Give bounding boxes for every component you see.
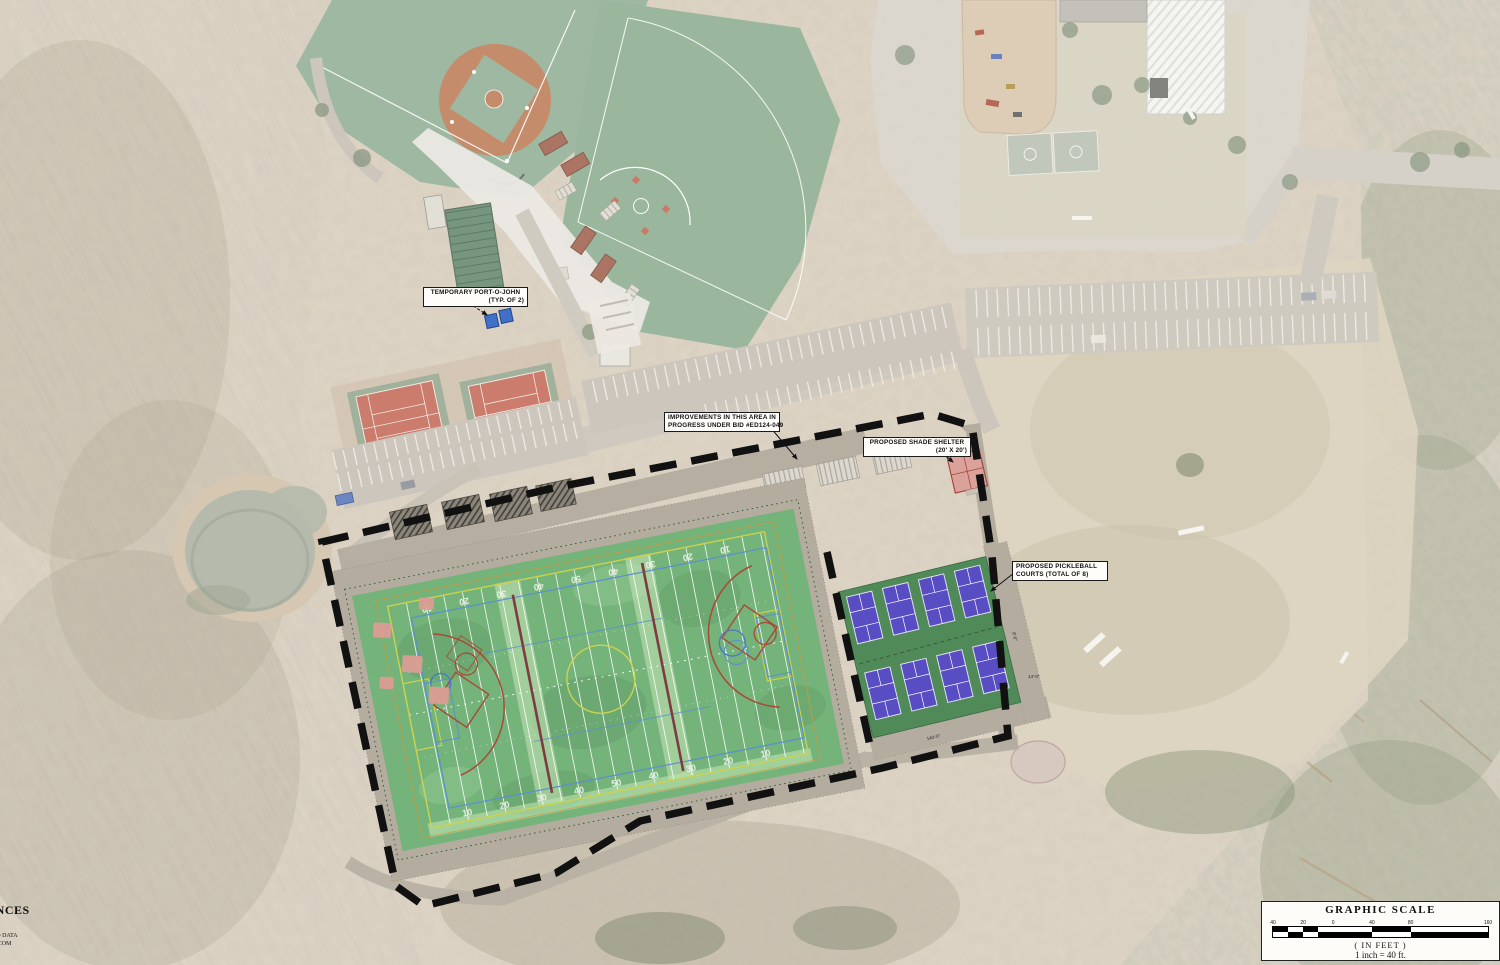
- svg-text:30: 30: [645, 559, 657, 571]
- references-line: BY MAPS.GOOGLE.COM: [0, 940, 30, 948]
- references-heading: REFERENCES: [0, 903, 30, 918]
- callout-line: IMPROVEMENTS IN THIS AREA IN: [668, 414, 776, 421]
- callout-improvements: IMPROVEMENTS IN THIS AREA IN PROGRESS UN…: [664, 412, 780, 432]
- svg-text:10: 10: [461, 807, 473, 819]
- site-plan-canvas: 10 20 30 40 50 40 30 20 10 10 20 30 40 5…: [0, 0, 1500, 965]
- svg-text:20: 20: [722, 755, 734, 767]
- scale-tick: 80: [1408, 920, 1414, 926]
- references-block: REFERENCES REFERENCES: MAP BACKGROUND DA…: [0, 903, 30, 949]
- scale-tick: 20: [1300, 920, 1306, 926]
- svg-text:30: 30: [496, 588, 508, 600]
- aerial-site-plan: 10 20 30 40 50 40 30 20 10 10 20 30 40 5…: [0, 0, 1500, 965]
- scale-ratio: 1 inch = 40 ft.: [1262, 950, 1499, 960]
- svg-text:40: 40: [533, 581, 545, 593]
- callout-pickleball: PROPOSED PICKLEBALL COURTS (TOTAL OF 8): [1012, 561, 1108, 581]
- svg-text:50: 50: [611, 777, 623, 789]
- svg-text:30: 30: [685, 763, 697, 775]
- callout-line: (TYP. OF 2): [427, 297, 524, 305]
- svg-text:40: 40: [573, 785, 585, 797]
- callout-line: PROGRESS UNDER BID #ED124-049: [668, 422, 776, 430]
- svg-text:40: 40: [648, 770, 660, 782]
- svg-text:10: 10: [719, 544, 731, 556]
- references-line: MAP BACKGROUND DATA: [0, 932, 30, 940]
- scale-tick: 40: [1369, 920, 1375, 926]
- callout-line: (20' x 20'): [867, 447, 967, 455]
- graphic-scale-title: GRAPHIC SCALE: [1262, 904, 1499, 916]
- callout-line: PROPOSED PICKLEBALL: [1016, 563, 1097, 570]
- svg-text:40: 40: [607, 566, 619, 578]
- graphic-scale-bar: 40 20 0 40 80 160: [1272, 926, 1489, 938]
- svg-text:10: 10: [760, 748, 772, 760]
- svg-text:50: 50: [570, 573, 582, 585]
- svg-text:20: 20: [682, 551, 694, 563]
- callout-shade-shelter: PROPOSED SHADE SHELTER (20' x 20'): [863, 437, 971, 457]
- callout-line: COURTS (TOTAL OF 8): [1016, 571, 1104, 579]
- callout-line: PROPOSED SHADE SHELTER: [870, 439, 965, 446]
- scale-tick: 160: [1484, 920, 1492, 926]
- references-label: REFERENCES:: [0, 919, 30, 925]
- svg-text:20: 20: [458, 595, 470, 607]
- scale-units: ( IN FEET ): [1262, 940, 1499, 950]
- svg-text:30: 30: [536, 792, 548, 804]
- haze-overlay: [0, 0, 1500, 965]
- scale-tick: 40: [1270, 920, 1276, 926]
- scale-tick: 0: [1332, 920, 1335, 926]
- svg-text:20: 20: [499, 799, 511, 811]
- callout-line: TEMPORARY PORT-O-JOHN: [431, 289, 521, 296]
- dimension-label: 14'-0": [1028, 674, 1040, 679]
- graphic-scale: GRAPHIC SCALE 40 20 0 40 80 160 ( IN FEE…: [1261, 901, 1500, 961]
- callout-port-o-john: TEMPORARY PORT-O-JOHN (TYP. OF 2): [423, 287, 528, 307]
